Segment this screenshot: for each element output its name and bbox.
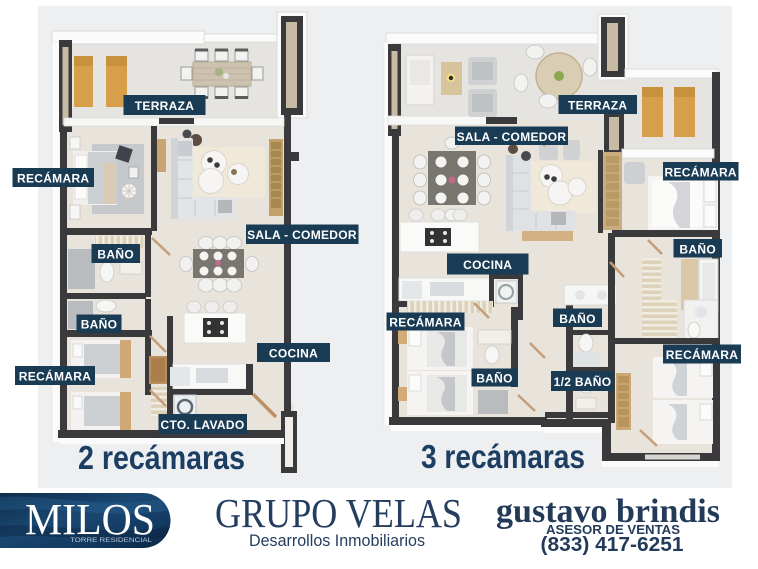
svg-text:COCINA: COCINA bbox=[269, 346, 318, 360]
svg-text:TERRAZA: TERRAZA bbox=[568, 98, 627, 112]
svg-text:RECÁMARA: RECÁMARA bbox=[17, 170, 89, 185]
svg-text:BAÑO: BAÑO bbox=[476, 370, 513, 385]
svg-text:RECÁMARA: RECÁMARA bbox=[664, 164, 736, 179]
svg-text:MILOS: MILOS bbox=[25, 495, 155, 544]
svg-text:RECÁMARA: RECÁMARA bbox=[19, 368, 91, 383]
svg-text:GRUPO VELAS: GRUPO VELAS bbox=[215, 490, 462, 536]
svg-text:Desarrollos Inmobiliarios: Desarrollos Inmobiliarios bbox=[249, 531, 425, 550]
svg-text:CTO. LAVADO: CTO. LAVADO bbox=[161, 418, 245, 432]
svg-text:2 recámaras: 2 recámaras bbox=[78, 439, 245, 476]
svg-text:COCINA: COCINA bbox=[463, 258, 512, 272]
svg-text:BAÑO: BAÑO bbox=[97, 246, 134, 261]
svg-text:3 recámaras: 3 recámaras bbox=[421, 438, 585, 475]
svg-text:(833) 417-6251: (833) 417-6251 bbox=[541, 533, 684, 556]
svg-text:BAÑO: BAÑO bbox=[679, 241, 716, 256]
svg-text:1/2 BAÑO: 1/2 BAÑO bbox=[554, 374, 612, 389]
svg-text:RECÁMARA: RECÁMARA bbox=[666, 347, 738, 362]
svg-text:BAÑO: BAÑO bbox=[559, 311, 596, 326]
svg-text:RECÁMARA: RECÁMARA bbox=[389, 314, 461, 329]
svg-text:TORRE RESIDENCIAL: TORRE RESIDENCIAL bbox=[70, 538, 153, 544]
svg-text:BAÑO: BAÑO bbox=[81, 317, 118, 332]
svg-text:SALA - COMEDOR: SALA - COMEDOR bbox=[457, 130, 567, 144]
svg-text:SALA - COMEDOR: SALA - COMEDOR bbox=[247, 228, 357, 242]
svg-text:TERRAZA: TERRAZA bbox=[135, 99, 194, 113]
